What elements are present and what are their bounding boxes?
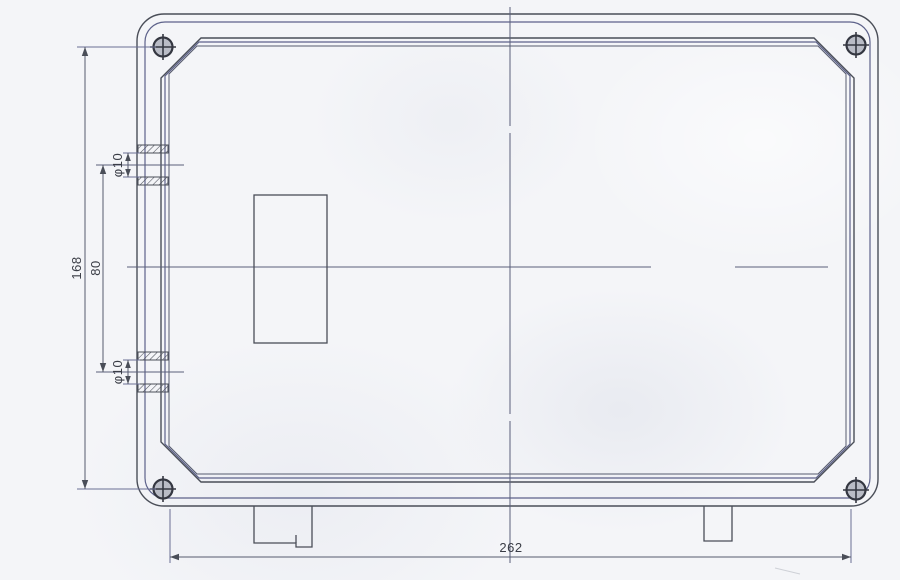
screw-top-right: [843, 32, 869, 58]
enclosure-rim-contour-2: [165, 42, 850, 478]
dim-port-diameter-top-label: φ10: [110, 153, 125, 177]
hatch-band: [138, 177, 168, 185]
dim-port-diameter-bottom-label: φ10: [110, 360, 125, 384]
dim-port-spacing-label: 80: [88, 260, 103, 275]
dim-overall-height-label: 168: [69, 256, 84, 279]
dim-overall-height: 168: [69, 47, 156, 489]
mounting-tab-left: [254, 506, 312, 547]
drawing-svg: 168 80 φ10 φ10 262: [0, 0, 900, 580]
hatch-band: [138, 384, 168, 392]
enclosure-rim-contour-3: [169, 46, 846, 474]
scanned-technical-drawing: 168 80 φ10 φ10 262: [0, 0, 900, 580]
inner-cutout-rect: [254, 195, 327, 343]
enclosure-body: [137, 14, 878, 506]
dim-mounting-width-label: 262: [499, 540, 522, 555]
hatch-band: [138, 352, 168, 360]
screw-bottom-right: [843, 477, 869, 503]
hatch-band: [138, 145, 168, 153]
enclosure-rim-contour-1: [161, 38, 854, 482]
mounting-tab-right: [704, 506, 732, 541]
scan-smudge: [775, 568, 800, 574]
enclosure-outer-outline: [137, 14, 878, 506]
dim-port-spacing: 80: [88, 165, 106, 372]
